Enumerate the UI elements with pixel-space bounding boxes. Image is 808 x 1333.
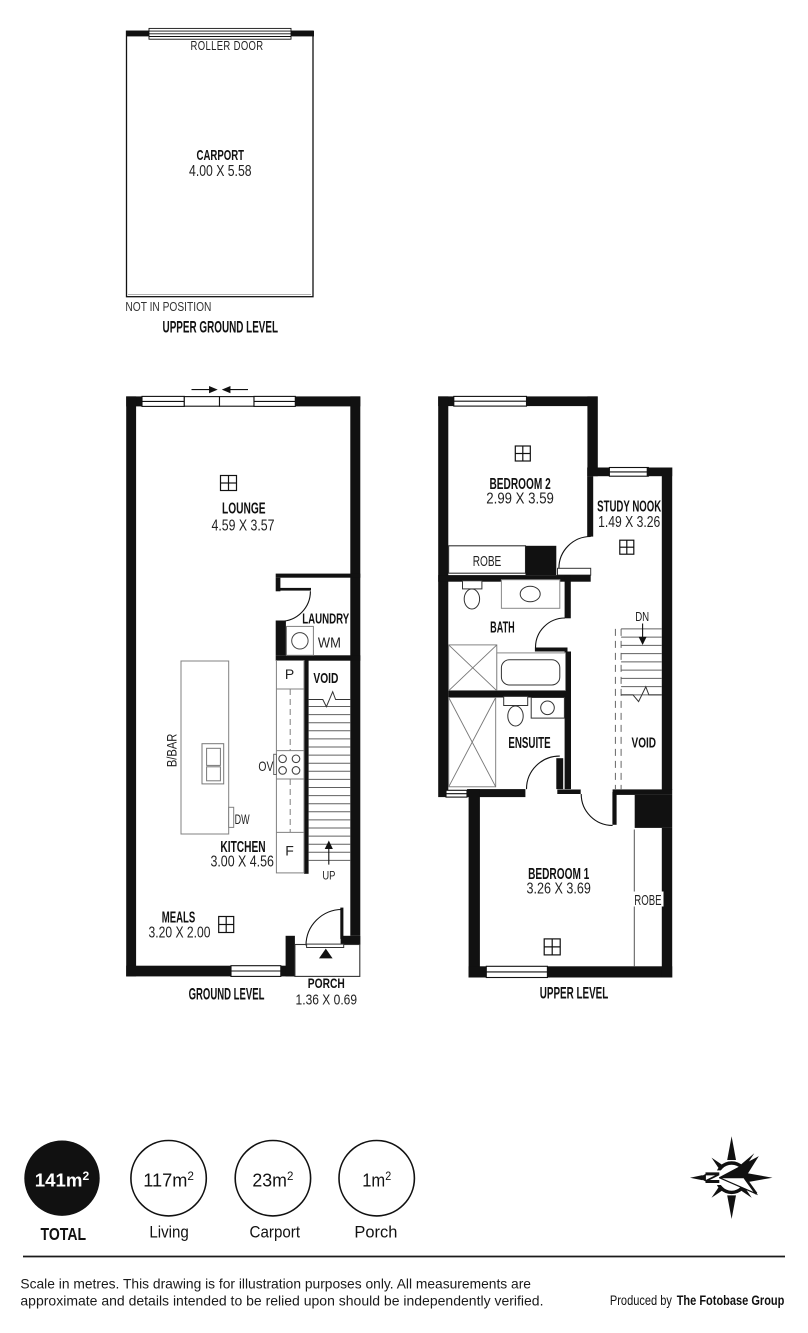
svg-text:Living: Living [149,1223,189,1242]
svg-text:ROBE: ROBE [634,892,661,909]
svg-text:OV: OV [258,758,273,774]
svg-text:PORCH: PORCH [308,975,345,991]
svg-text:Scale in metres. This drawing: Scale in metres. This drawing is for ill… [20,1277,531,1292]
svg-text:ENSUITE: ENSUITE [508,735,550,752]
svg-text:3.20 X 2.00: 3.20 X 2.00 [149,925,211,942]
svg-text:DN: DN [635,610,649,624]
svg-text:BATH: BATH [490,619,515,636]
svg-text:VOID: VOID [632,734,657,751]
svg-text:23m2: 23m2 [252,1169,293,1191]
svg-text:141m2: 141m2 [35,1169,90,1191]
svg-text:P: P [285,666,294,682]
svg-text:ROLLER DOOR: ROLLER DOOR [191,38,264,53]
svg-text:3.00 X 4.56: 3.00 X 4.56 [210,853,274,870]
svg-text:117m2: 117m2 [143,1169,194,1191]
svg-text:LOUNGE: LOUNGE [222,501,266,518]
svg-text:UPPER GROUND LEVEL: UPPER GROUND LEVEL [163,319,279,337]
svg-text:F: F [285,843,294,859]
svg-text:ROBE: ROBE [473,553,502,570]
svg-text:B/BAR: B/BAR [163,734,179,768]
svg-text:WM: WM [318,635,341,651]
svg-text:4.00 X 5.58: 4.00 X 5.58 [189,163,252,180]
svg-text:LAUNDRY: LAUNDRY [302,611,349,628]
svg-text:CARPORT: CARPORT [197,147,245,164]
svg-text:VOID: VOID [313,670,338,687]
svg-text:TOTAL: TOTAL [41,1224,87,1244]
svg-text:UP: UP [322,870,335,882]
svg-text:1.36 X 0.69: 1.36 X 0.69 [296,991,358,1008]
svg-text:DW: DW [235,811,251,827]
svg-text:1m2: 1m2 [362,1169,391,1191]
svg-text:1.49 X 3.26: 1.49 X 3.26 [598,514,660,531]
svg-text:Porch: Porch [354,1223,397,1242]
svg-text:STUDY NOOK: STUDY NOOK [597,498,661,515]
svg-text:UPPER LEVEL: UPPER LEVEL [540,985,609,1003]
svg-text:The Fotobase Group: The Fotobase Group [677,1293,785,1308]
svg-text:approximate and details intend: approximate and details intended to be r… [20,1294,543,1309]
svg-text:NOT IN POSITION: NOT IN POSITION [125,299,211,314]
svg-text:Produced by: Produced by [610,1293,672,1308]
svg-text:Carport: Carport [250,1223,301,1242]
svg-text:GROUND LEVEL: GROUND LEVEL [189,985,265,1003]
svg-text:3.26 X 3.69: 3.26 X 3.69 [527,881,591,898]
svg-text:4.59 X 3.57: 4.59 X 3.57 [212,517,275,534]
svg-text:2.99 X 3.59: 2.99 X 3.59 [486,491,554,508]
